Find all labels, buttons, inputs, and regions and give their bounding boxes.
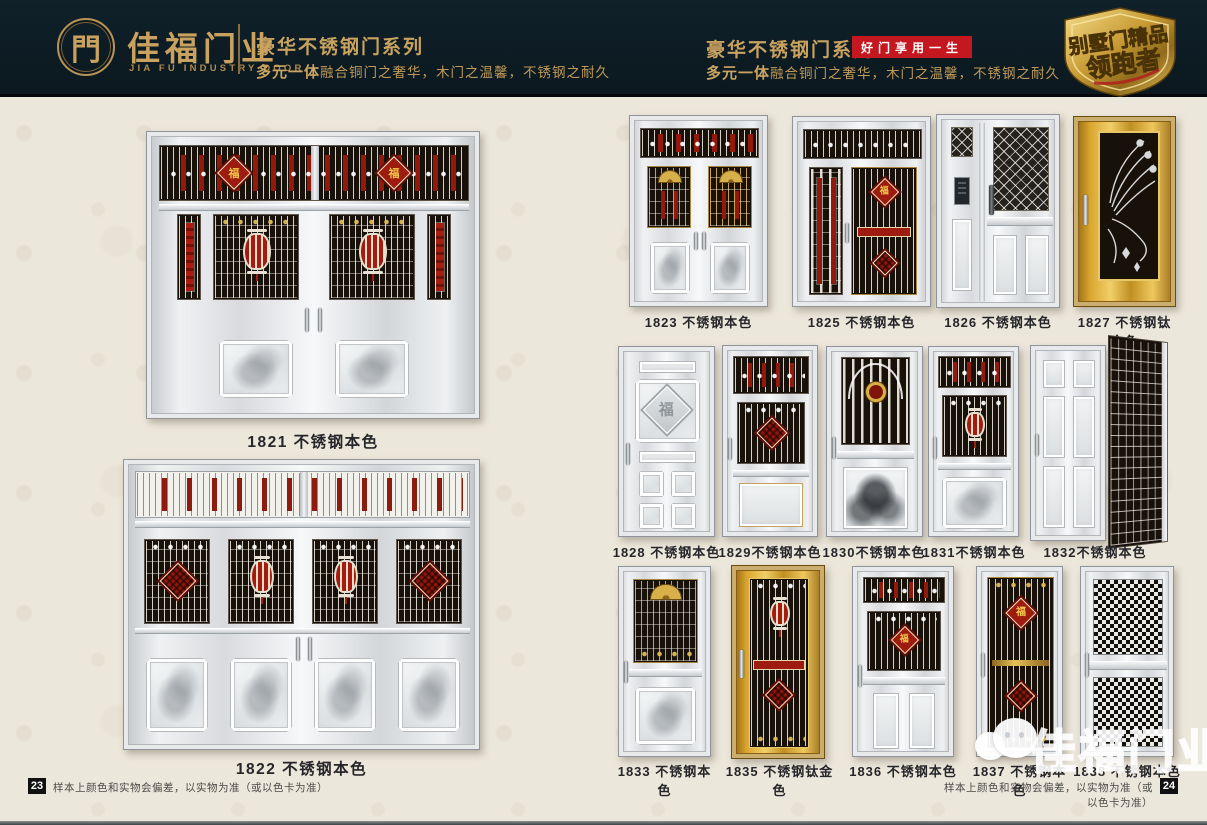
door-label-1830: 1830不锈钢本色 xyxy=(820,542,928,561)
gold-band xyxy=(992,660,1049,666)
brand-watermark: 佳福门业 xyxy=(975,708,1200,796)
series-subtitle-right: 多元一体融合铜门之奢华，木门之温馨，不锈钢之耐久 xyxy=(706,62,1060,83)
door-1831 xyxy=(928,346,1019,537)
series-subtitle-left: 多元一体融合铜门之奢华，木门之温馨，不锈钢之耐久 xyxy=(256,61,610,82)
transom-grille: 福 福 xyxy=(159,145,469,201)
screen-door-edge xyxy=(1162,342,1167,541)
emboss-panel xyxy=(398,658,460,732)
door-1822 xyxy=(123,459,480,750)
brand-logo-icon: 門 xyxy=(57,18,115,76)
header-divider xyxy=(238,24,240,74)
transom-mullion xyxy=(300,472,308,518)
subtitle-rest-right: 融合铜门之奢华，木门之温馨，不锈钢之耐久 xyxy=(770,66,1060,81)
sidelite-grille xyxy=(177,214,201,300)
series-title-right: 豪华不锈钢门系列 xyxy=(706,35,874,62)
door-handle xyxy=(739,650,744,678)
flourish-panel xyxy=(1098,131,1160,281)
emboss-panel xyxy=(146,658,208,732)
door-1829 xyxy=(722,345,818,537)
door-label-1832: 1832不锈钢本色 xyxy=(1035,542,1155,561)
gold-beads xyxy=(218,218,294,226)
lower-panel xyxy=(993,235,1017,295)
watermark-text: 佳福门业 xyxy=(1030,716,1207,782)
door-handle xyxy=(981,653,985,677)
door-handle xyxy=(296,637,300,661)
art-panel xyxy=(739,483,803,527)
lantern-ornament xyxy=(241,229,273,281)
subtitle-rest-left: 融合铜门之奢华，木门之温馨，不锈钢之耐久 xyxy=(320,65,610,80)
door-label-1828: 1828 不锈钢本色 xyxy=(610,542,723,561)
door-rail xyxy=(159,204,469,211)
leaf-grille-window xyxy=(942,395,1007,457)
door-label-1831: 1831不锈钢本色 xyxy=(920,542,1028,561)
lower-panel xyxy=(1025,235,1049,295)
door-label-1822: 1822 不锈钢本色 xyxy=(123,757,480,779)
door-handle xyxy=(308,637,312,661)
slogan-badge: 好门享用一生 xyxy=(852,36,972,58)
peacock-flourish-icon xyxy=(1100,133,1158,279)
door-panel xyxy=(1043,360,1065,388)
door-handle xyxy=(305,308,309,332)
firecracker-ornament xyxy=(186,223,194,291)
mesh-grille-window xyxy=(993,127,1049,211)
emboss-panel xyxy=(314,658,376,732)
leaf-grille-window xyxy=(329,214,415,300)
door-handle xyxy=(832,437,836,459)
leaf-grille-window: 福 xyxy=(867,611,941,671)
lantern-ornament xyxy=(248,556,276,604)
door-1821: 福 福 xyxy=(146,131,480,419)
emboss-strip xyxy=(639,451,696,463)
door-rail xyxy=(135,521,470,528)
door-label-1825: 1825 不锈钢本色 xyxy=(792,312,931,331)
lower-panel xyxy=(873,693,899,749)
red-bar xyxy=(858,228,910,236)
door-handle xyxy=(858,665,862,687)
gold-beads xyxy=(334,218,410,226)
door-handle xyxy=(626,443,630,465)
door-handle xyxy=(624,661,628,683)
emboss-panel xyxy=(710,242,750,294)
sidelite-grille xyxy=(427,214,451,300)
door-label-1829: 1829不锈钢本色 xyxy=(716,542,824,561)
door-1823 xyxy=(629,115,768,307)
sidelite-mesh-window xyxy=(951,127,973,157)
shield-badge: 别墅门精品 领跑者 xyxy=(1056,5,1184,99)
door-label-1826: 1826 不锈钢本色 xyxy=(936,312,1060,331)
lantern-ornament xyxy=(769,597,791,637)
door-panel xyxy=(1073,396,1095,458)
red-bar xyxy=(754,661,804,669)
subtitle-lead-left: 多元一体 xyxy=(256,64,320,81)
page-number-left: 23 xyxy=(28,778,46,794)
door-handle xyxy=(702,232,706,250)
header-band: 門 佳福门业 JIA FU INDUSTRY DOOR 豪华不锈钢门系列 多元一… xyxy=(0,0,1207,97)
transom-grille-light xyxy=(135,471,470,518)
door-1835 xyxy=(731,565,825,759)
door-1826 xyxy=(936,114,1060,308)
door-panel xyxy=(1043,466,1065,528)
door-1833 xyxy=(618,566,711,757)
door-handle xyxy=(989,185,994,215)
lantern-ornament xyxy=(964,408,986,448)
door-label-1823: 1823 不锈钢本色 xyxy=(629,312,768,331)
door-rail xyxy=(863,677,945,685)
door-handle xyxy=(845,223,849,243)
door-1825: 福 xyxy=(792,116,931,307)
leaf-grille-window xyxy=(312,539,378,624)
emboss-panel xyxy=(219,340,293,398)
door-1830 xyxy=(826,346,923,537)
door-handle xyxy=(1085,653,1089,677)
door-rail xyxy=(629,669,702,677)
door-rail xyxy=(733,470,809,477)
open-screen-door xyxy=(1108,335,1168,549)
emboss-panel xyxy=(635,687,696,745)
door-1832 xyxy=(1030,345,1106,541)
intercom-unit xyxy=(954,177,970,205)
door-panel xyxy=(1043,396,1065,458)
screen-grid xyxy=(1111,338,1166,545)
framed-art-panel xyxy=(942,477,1007,529)
sidelite-grille xyxy=(809,167,843,295)
transom-grille xyxy=(733,356,809,394)
full-grille-window xyxy=(749,578,809,748)
door-rail xyxy=(1089,661,1167,670)
catalog-spread: 門 佳福门业 JIA FU INDUSTRY DOOR 豪华不锈钢门系列 多元一… xyxy=(0,0,1207,825)
logo-door-glyph: 門 xyxy=(71,25,101,69)
emboss-small xyxy=(639,503,664,529)
door-rail xyxy=(135,628,470,634)
transom-mullion xyxy=(311,146,319,201)
emboss-small xyxy=(671,503,696,529)
door-handle xyxy=(728,438,732,460)
door-rail xyxy=(987,217,1053,226)
door-rail xyxy=(837,451,914,459)
art-panel-lotus xyxy=(843,467,908,529)
leaf-grille-window xyxy=(144,539,210,624)
emboss-panel xyxy=(650,242,690,294)
transom-grille xyxy=(803,129,922,159)
door-handle xyxy=(694,232,698,250)
transom-grille xyxy=(863,577,945,603)
door-handle xyxy=(1083,195,1088,225)
lower-panel xyxy=(909,693,935,749)
leaf-grille-window xyxy=(708,166,752,228)
leaf-grille-window xyxy=(737,402,805,464)
door-handle xyxy=(933,437,937,459)
lantern-ornament xyxy=(332,556,360,604)
transom-grille xyxy=(938,356,1011,388)
door-panel xyxy=(1073,466,1095,528)
emboss-small xyxy=(639,471,664,497)
leaf-grille-window xyxy=(396,539,462,624)
sidelite-panel xyxy=(952,219,972,291)
door-rail xyxy=(938,463,1011,470)
door-panel xyxy=(1073,360,1095,388)
door-label-1836: 1836 不锈钢本色 xyxy=(846,761,960,780)
emboss-small xyxy=(671,471,696,497)
page-bottom-edge xyxy=(0,821,1207,825)
emboss-panel xyxy=(335,340,409,398)
lantern-ornament xyxy=(357,229,389,281)
leaf-grille-window xyxy=(213,214,299,300)
door-1828: 福 xyxy=(618,346,715,537)
door-mullion xyxy=(979,123,985,301)
shield-icon: 别墅门精品 领跑者 xyxy=(1056,5,1184,99)
series-title-left: 豪华不锈钢门系列 xyxy=(256,32,424,59)
round-medallion xyxy=(866,382,886,402)
leaf-grille-window xyxy=(633,579,698,663)
door-label-1821: 1821 不锈钢本色 xyxy=(146,430,480,452)
arched-grille-window xyxy=(841,357,910,445)
door-handle xyxy=(1035,434,1039,456)
leaf-grille-window xyxy=(228,539,294,624)
emboss-panel xyxy=(230,658,292,732)
leaf-grille-window: 福 xyxy=(851,167,917,295)
disclaimer-left: 样本上颜色和实物会偏差，以实物为准（或以色卡为准） xyxy=(53,780,328,795)
subtitle-lead-right: 多元一体 xyxy=(706,65,770,82)
leaf-grille-window xyxy=(647,166,691,228)
checker-grille-panel xyxy=(1093,579,1163,655)
door-1827 xyxy=(1073,116,1176,307)
door-label-1833: 1833 不锈钢本色 xyxy=(612,761,717,799)
emboss-strip xyxy=(639,361,696,373)
transom-grille xyxy=(640,128,759,158)
door-handle xyxy=(318,308,322,332)
door-1836: 福 xyxy=(852,566,954,757)
door-label-1835: 1835 不锈钢钛金色 xyxy=(722,761,837,799)
firecracker-ornament xyxy=(436,223,444,291)
